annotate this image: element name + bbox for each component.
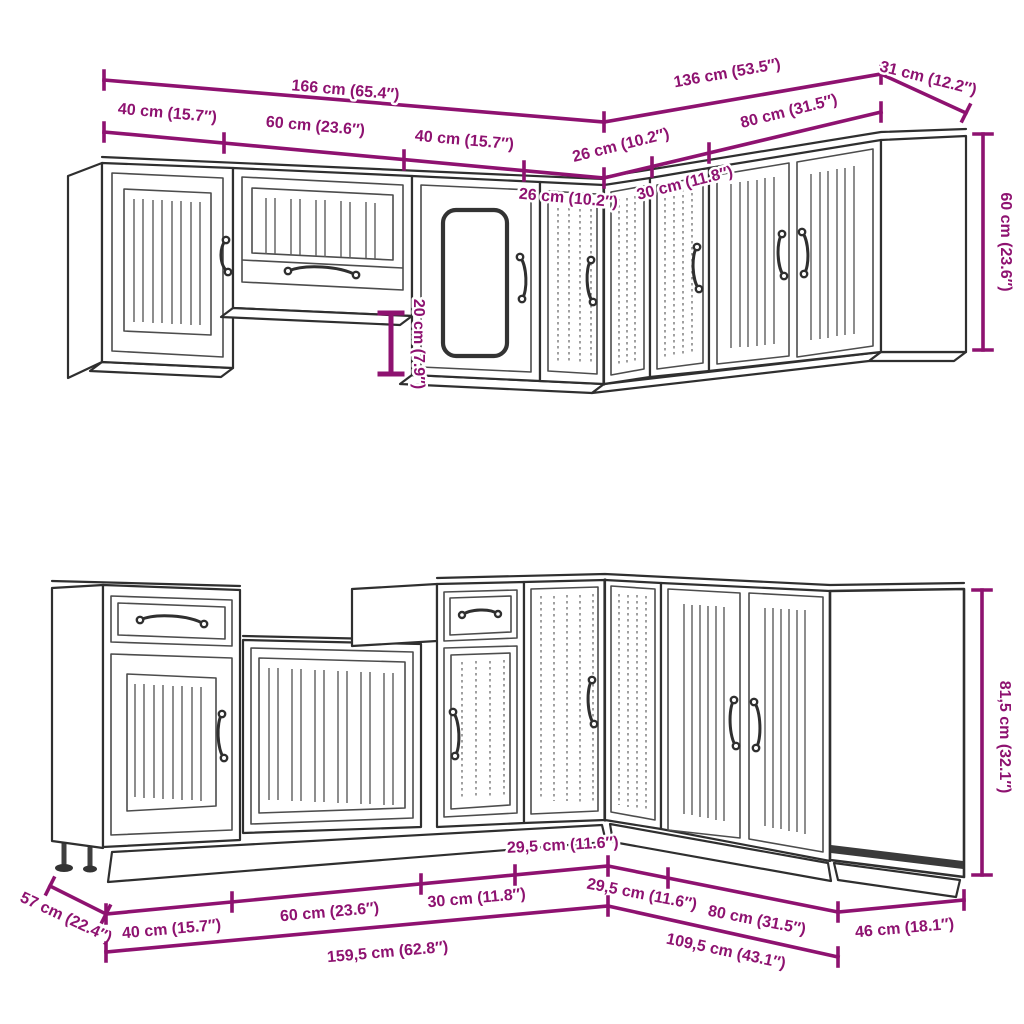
base-panel-295-corner-right	[605, 580, 661, 829]
dim-label-wall-26-right: 26 cm (10.2″)	[571, 125, 671, 166]
dim-label-base-side-depth: 57 cm (22.4″)	[17, 889, 114, 946]
base-cabinet-80-double	[661, 583, 830, 861]
wall-cabinet-30	[650, 168, 709, 377]
wall-cabinet-80-double	[709, 140, 881, 371]
wall-cabinet-40-glass	[412, 176, 540, 381]
base-right-side-panel	[830, 589, 964, 877]
dim-label-wall-40a: 40 cm (15.7″)	[117, 101, 217, 127]
base-cabinet-40	[103, 585, 240, 847]
dim-line-46	[838, 900, 964, 912]
wall-cabinets-view: 166 cm (65.4″) 136 cm (53.5″) 31 cm (12.…	[68, 56, 1014, 393]
dim-label-base-80: 80 cm (31.5″)	[707, 903, 808, 939]
wall-cabinet-26-corner-left	[540, 182, 604, 384]
base-cabinet-30	[437, 582, 524, 827]
wall-cabinet-60-bridge	[221, 168, 412, 325]
base-30-side-panel	[352, 584, 437, 646]
wall-cabinet-40-left	[102, 163, 233, 368]
dim-label-base-60: 60 cm (23.6″)	[279, 900, 379, 926]
dim-label-base-40: 40 cm (15.7″)	[121, 917, 221, 943]
base-cabinet-295-corner-left	[524, 580, 605, 823]
diagram-canvas: 166 cm (65.4″) 136 cm (53.5″) 31 cm (12.…	[0, 0, 1024, 1024]
glass-panel	[443, 210, 507, 356]
dim-label-wall-total-right: 136 cm (53.5″)	[672, 56, 781, 92]
base-cabinets-view: 57 cm (22.4″) 40 cm (15.7″) 60 cm (23.6″…	[17, 574, 1013, 973]
dim-label-base-total-left: 159,5 cm (62.8″)	[326, 939, 449, 967]
wall-left-side-panel	[68, 163, 102, 378]
dim-label-base-end-depth: 46 cm (18.1″)	[854, 916, 954, 942]
dim-label-base-height: 81,5 cm (32.1″)	[996, 681, 1013, 794]
dim-label-wall-60: 60 cm (23.6″)	[265, 114, 365, 140]
dim-label-bridge-drop: 20 cm (7.9″)	[410, 299, 427, 389]
wall-right-side-panel	[881, 136, 966, 352]
kitchen-dimension-diagram: 166 cm (65.4″) 136 cm (53.5″) 31 cm (12.…	[0, 0, 1024, 1024]
dim-label-wall-height: 60 cm (23.6″)	[997, 192, 1014, 291]
dim-label-base-30: 30 cm (11.8″)	[427, 886, 526, 912]
base-cabinet-60-sink	[243, 640, 421, 833]
wall-underside-side	[869, 352, 966, 361]
dim-label-base-total-right: 109,5 cm (43.1″)	[665, 931, 787, 973]
cabinet-legs	[55, 843, 97, 873]
base-left-side-panel	[52, 585, 103, 848]
dim-label-wall-40b: 40 cm (15.7″)	[414, 128, 514, 154]
